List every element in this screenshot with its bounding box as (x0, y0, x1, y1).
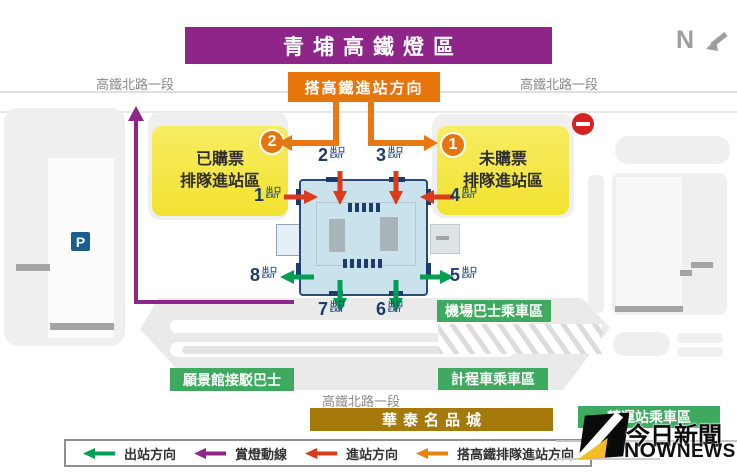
exit-direction-arrow-icon (82, 447, 116, 460)
hsr-queue-arrow-icon (415, 447, 449, 460)
gate-dash (350, 259, 354, 268)
enter-arrow-exit2-icon (332, 171, 348, 205)
compass-arrow-icon (702, 30, 730, 54)
gate-dash (378, 259, 382, 268)
zone-airport-bus: 機場巴士乘車區 (437, 300, 551, 322)
exit-label-5: 5 出口EXIT (450, 266, 478, 284)
gate-dash (355, 203, 359, 212)
zone-unticketed-line1: 未購票 (479, 149, 527, 171)
exit-label-4: 4 出口EXIT (450, 186, 478, 204)
gate-dash (343, 259, 347, 268)
hsr-boarding-route-arrows-icon (275, 99, 443, 155)
crosswalk-bar (50, 323, 114, 330)
zone-taxi: 計程車乘車區 (438, 368, 548, 390)
building-southeast (613, 332, 670, 356)
gate-dash (348, 203, 352, 212)
building-detail-bar (680, 270, 692, 276)
exit-label-2: 2 出口EXIT (318, 146, 346, 164)
badge-1: 1 (440, 132, 466, 158)
enter-arrow-exit3-icon (388, 171, 404, 205)
gate-dash (371, 259, 375, 268)
building-east-bar (615, 136, 730, 164)
zone-outlet-mall: 華泰名品城 (310, 408, 553, 431)
exit-label-8: 8 出口EXIT (250, 266, 278, 284)
escalator-block (380, 217, 398, 251)
lantern-route-arrow-icon (193, 447, 227, 460)
zone-shuttle-bus: 願景館接駁巴士 (170, 368, 294, 391)
legend-item-enter: 進站方向 (304, 444, 398, 463)
enter-arrow-exit1-icon (284, 189, 318, 205)
bus-bays-hatching (438, 324, 602, 354)
gate-dash (362, 203, 366, 212)
enter-arrow-exit4-icon (420, 189, 454, 205)
exit-arrow-exit5-icon (420, 269, 454, 285)
exit-label-1: 1 出口EXIT (254, 186, 282, 204)
exit-label-6: 6 出口EXIT (376, 300, 404, 318)
exit-label-7: 7 出口EXIT (318, 300, 346, 318)
gate-dash (369, 203, 373, 212)
legend-item-hsr-queue: 搭高鐵排隊進站方向 (415, 444, 574, 463)
legend-item-lantern: 賞燈動線 (193, 444, 287, 463)
station-wing-detail (436, 236, 449, 240)
parking-icon: P (71, 232, 90, 251)
crosswalk-bar (16, 264, 50, 271)
exit-arrow-exit8-icon (280, 269, 314, 285)
watermark-en: NOWNEWS (624, 439, 736, 463)
enter-direction-arrow-icon (304, 447, 338, 460)
building-southeast-bar (677, 347, 723, 357)
page-title: 青埔高鐵燈區 (185, 27, 552, 64)
building-southeast-bar (677, 333, 723, 343)
watermark-now: NOW (624, 439, 677, 462)
building-detail-bar (615, 306, 683, 312)
gate-dash (376, 203, 380, 212)
legend: 出站方向 賞燈動線 進站方向 搭高鐵排隊進站方向 (64, 439, 592, 467)
legend-item-exit: 出站方向 (82, 444, 176, 463)
board-direction-callout: 搭高鐵進站方向 (288, 72, 440, 102)
road-label-top-left: 高鐵北路一段 (96, 74, 174, 93)
no-entry-icon (572, 113, 594, 135)
building-east-inner (616, 177, 682, 307)
building-east-strip (588, 175, 604, 313)
nownews-logo-icon (579, 413, 630, 460)
building-detail-bar (691, 262, 713, 268)
gate-dash (364, 259, 368, 268)
station-map: 高鐵北路一段 高鐵北路一段 高鐵北路一段 青埔高鐵燈區 N P 已購票 排隊進站… (0, 0, 737, 473)
escalator-block (329, 219, 345, 252)
gate-dash (357, 259, 361, 268)
compass-label: N (676, 26, 694, 55)
exit-label-3: 3 出口EXIT (376, 146, 404, 164)
road-label-top-right: 高鐵北路一段 (520, 74, 598, 93)
watermark-news: NEWS (677, 441, 736, 462)
